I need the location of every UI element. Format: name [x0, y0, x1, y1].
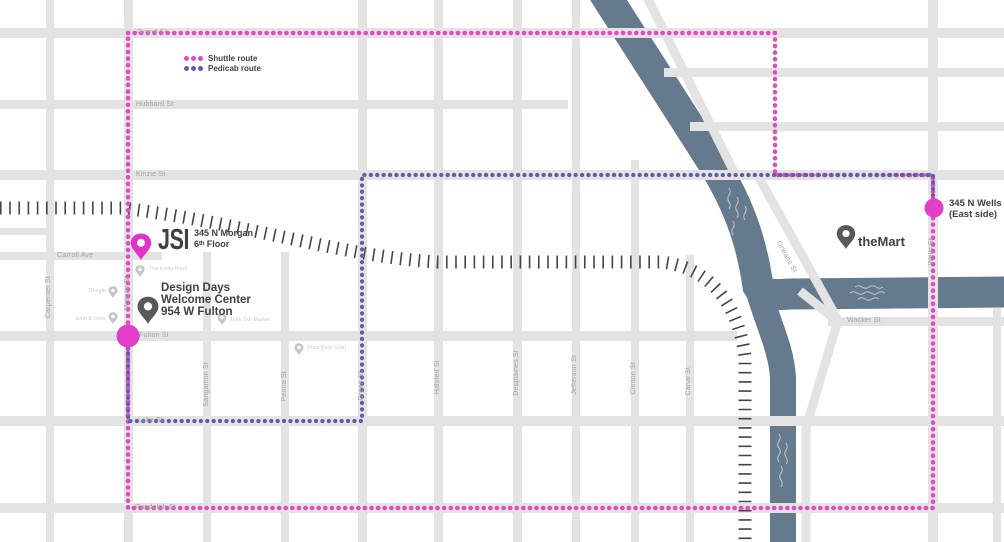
street-halsted — [434, 0, 443, 542]
shuttle-route-dots-icon — [184, 56, 203, 61]
google-pin-icon[interactable] — [109, 286, 118, 298]
welcome-center-pin-icon[interactable] — [138, 297, 159, 324]
swift-sons-pin-icon[interactable] — [109, 312, 118, 324]
street-hubbard — [0, 100, 568, 109]
street-label-canal: Canal St — [685, 367, 692, 395]
poi-label-swift-sons: Swift & Sons — [72, 316, 106, 322]
street-label-fulton: Fulton St — [139, 332, 169, 339]
themart-label: theMart — [858, 234, 905, 249]
street-label-halsted: Halsted St — [434, 360, 441, 394]
street-carpenter — [46, 0, 54, 542]
shuttle-pedicab-map: Shuttle route Pedicab route Grand St Hub… — [0, 0, 1004, 542]
street-label-morgan: Morgan St — [124, 276, 131, 310]
duck-duck-goat-pin-icon[interactable] — [295, 343, 304, 355]
welcome-center-line3: 954 W Fulton — [161, 307, 233, 319]
street-green — [358, 0, 367, 542]
street-label-kinzie: Kinzie St — [136, 171, 165, 178]
wells-stop-circle[interactable] — [925, 199, 944, 218]
jsi-title: JSI — [158, 226, 189, 255]
jsi-address-line1: 345 N Morgan — [194, 229, 253, 239]
legend-pedicab-label: Pedicab route — [208, 64, 261, 73]
street-label-peoria: Peoria St — [281, 371, 288, 402]
street-label-green: Green St — [358, 371, 365, 401]
street-east-1 — [664, 68, 1004, 77]
street-label-lake: Lake St — [138, 417, 163, 424]
pedicab-route-dots-icon — [184, 66, 203, 71]
jsi-address-line2: 6ᵗʰ Floor — [194, 240, 229, 250]
street-label-jefferson: Jefferson St — [571, 355, 578, 395]
poi-label-time-out-market: Time Out Market — [230, 317, 270, 323]
street-east-edge — [993, 308, 1001, 542]
street-label-hubbard: Hubbard St — [136, 101, 173, 108]
poi-label-emily-hotel: The Emily Hotel — [149, 266, 187, 272]
street-label-sangamon: Sangamon St — [203, 362, 210, 407]
legend: Shuttle route Pedicab route — [184, 53, 261, 73]
street-clinton — [631, 160, 639, 542]
street-stub — [0, 228, 46, 235]
wells-stop-line2: (East side) — [949, 210, 997, 221]
street-canal — [686, 255, 694, 542]
street-label-grand: Grand St — [137, 29, 167, 36]
street-label-randolph: Randolph St — [135, 504, 176, 511]
emily-hotel-pin-icon[interactable] — [136, 265, 145, 277]
welcome-center-stop-circle[interactable] — [117, 325, 140, 348]
legend-pedicab-row: Pedicab route — [184, 63, 261, 73]
river — [597, 0, 1004, 542]
street-label-wells: Wells St — [928, 238, 935, 265]
themart-pin-icon[interactable] — [837, 225, 855, 249]
street-label-clinton: Clinton St — [630, 362, 637, 394]
street-east-2 — [690, 122, 1004, 131]
legend-shuttle-row: Shuttle route — [184, 53, 261, 63]
street-label-desplaines: Desplaines St — [513, 350, 520, 396]
poi-label-duck-duck-goat: Duck Duck Goat — [307, 345, 346, 351]
street-desplaines — [513, 0, 522, 542]
street-label-wacker: Wacker St — [847, 317, 881, 324]
street-label-carroll: Carroll Ave — [57, 252, 93, 259]
street-label-carpenter: Carpenter St — [45, 276, 52, 318]
street-fulton — [0, 331, 737, 341]
poi-label-google: Google — [84, 288, 106, 294]
street-jefferson — [572, 0, 580, 542]
legend-shuttle-label: Shuttle route — [208, 54, 257, 63]
